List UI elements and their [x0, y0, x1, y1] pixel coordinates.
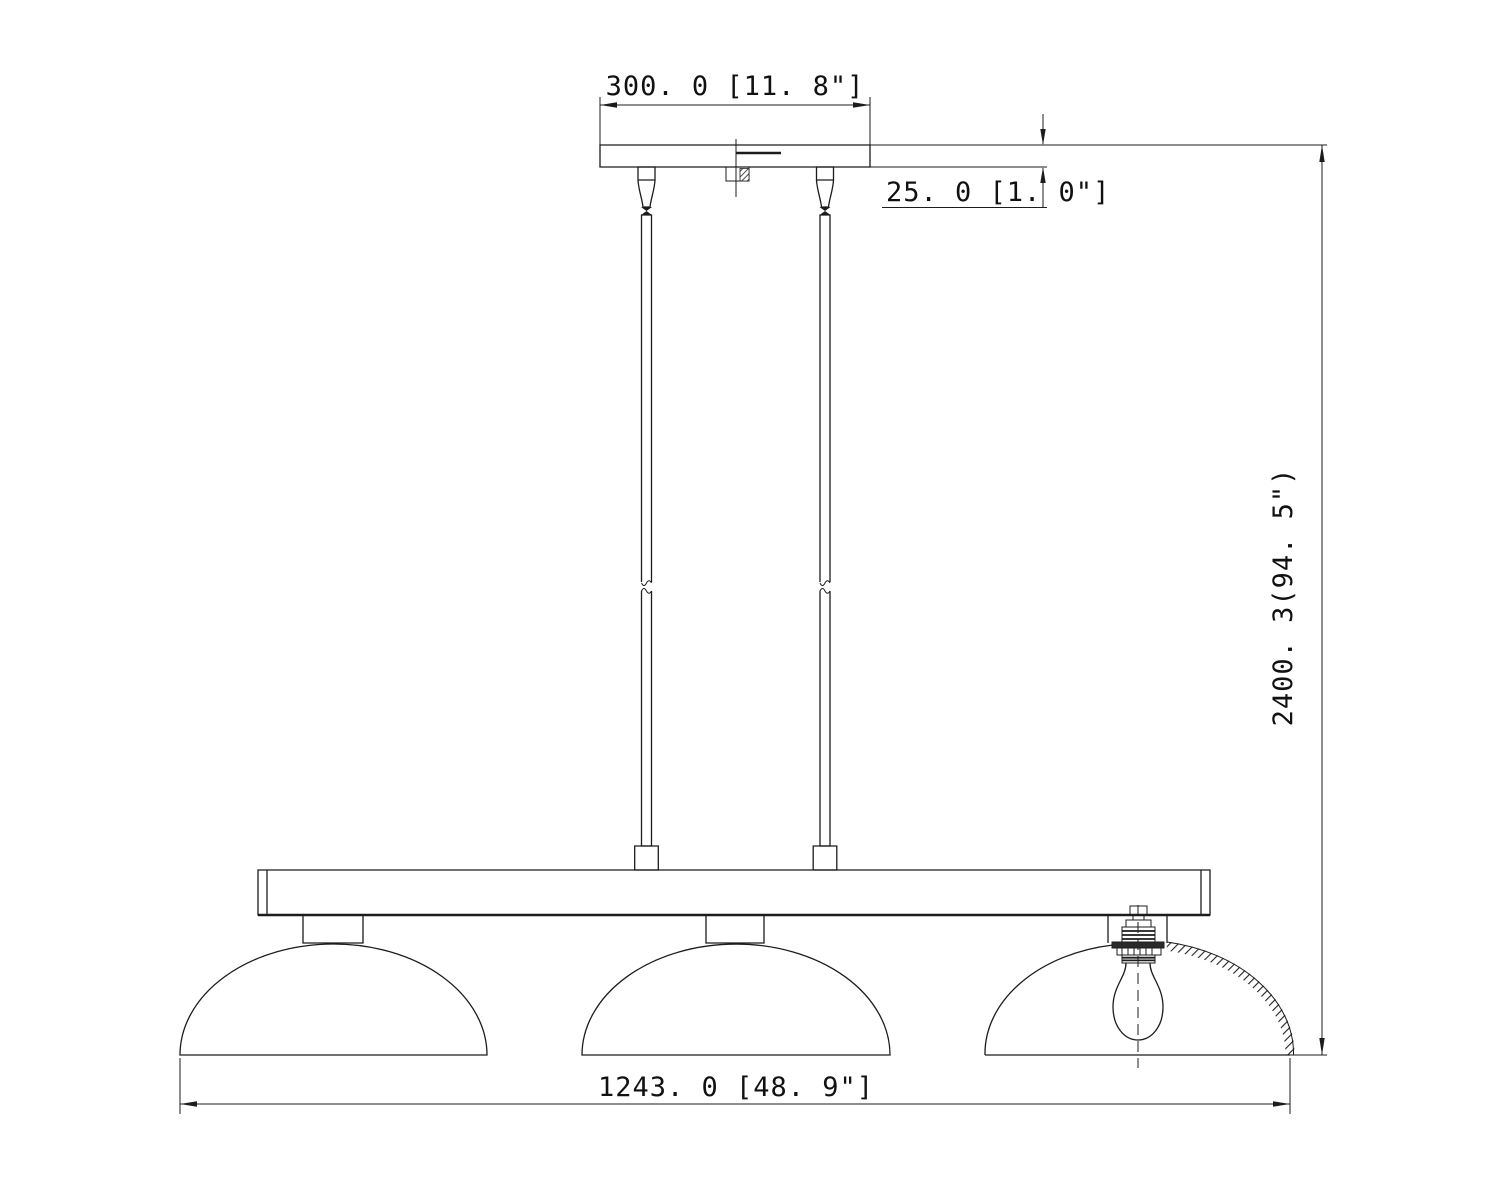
socket-holder-left [303, 915, 363, 943]
dim-canopy-width-arrow-right [853, 102, 870, 107]
mounting-bracket-detail [726, 139, 781, 197]
shade-left [180, 944, 487, 1055]
dim-fixture-width-arrow-left [180, 1101, 197, 1106]
dim-canopy-thickness: 25. 0 [1. 0"] [870, 114, 1327, 208]
stem-right-hanger-block [817, 167, 834, 180]
dim-canopy-width-arrow-left [600, 102, 617, 107]
stem-left [635, 167, 659, 870]
dim-overall-height-arrow-bottom [1319, 1038, 1324, 1055]
dim-canopy-width-label: 300. 0 [11. 8"] [606, 71, 865, 102]
dim-canopy-thickness-arrow-down [1040, 129, 1045, 145]
dim-canopy-thickness-label: 25. 0 [1. 0"] [886, 177, 1110, 208]
stem-left-bar-bracket [635, 846, 659, 870]
fixture-drawing: 300. 0 [11. 8"] 25. 0 [1. 0"] 2400. 3(94… [0, 0, 1500, 1200]
stem-right-knuckle [820, 207, 831, 215]
socket-holder-middle [706, 915, 764, 943]
dim-fixture-width-arrow-right [1273, 1101, 1290, 1106]
socket-ring [1117, 948, 1161, 955]
stem-right [813, 167, 837, 870]
canopy [600, 145, 870, 167]
shade-right-thin-arc [985, 945, 1113, 1055]
shade-middle [582, 944, 890, 1055]
dim-fixture-width-label: 1243. 0 [48. 9"] [598, 1072, 874, 1103]
shade-right-cutaway [985, 942, 1294, 1055]
stem-left-taper [638, 180, 655, 207]
bar-outline [258, 870, 1210, 915]
dim-overall-height: 2400. 3(94. 5") [1268, 145, 1327, 1055]
dim-overall-height-label: 2400. 3(94. 5") [1268, 468, 1299, 727]
stem-right-taper [817, 180, 834, 207]
dim-fixture-width: 1243. 0 [48. 9"] [180, 1058, 1290, 1114]
shade-right-rim-outer-edge [1167, 942, 1294, 1055]
bulb-socket [1112, 905, 1164, 1068]
stem-right-rod [820, 215, 830, 846]
stem-left-knuckle [641, 207, 652, 215]
dim-canopy-width: 300. 0 [11. 8"] [600, 71, 870, 145]
mount-block-hatch [740, 169, 749, 182]
stem-left-hanger-block [638, 167, 655, 180]
stem-left-rod [642, 215, 652, 846]
stem-right-bar-bracket [813, 846, 837, 870]
socket-shade-flange [1112, 942, 1164, 948]
dim-overall-height-arrow-top [1319, 145, 1324, 162]
canopy-outline [600, 145, 870, 167]
shade-right-hatched-rim [1167, 946, 1290, 1055]
drawing-canvas: 300. 0 [11. 8"] 25. 0 [1. 0"] 2400. 3(94… [0, 0, 1500, 1200]
fixture-bar [258, 870, 1210, 915]
